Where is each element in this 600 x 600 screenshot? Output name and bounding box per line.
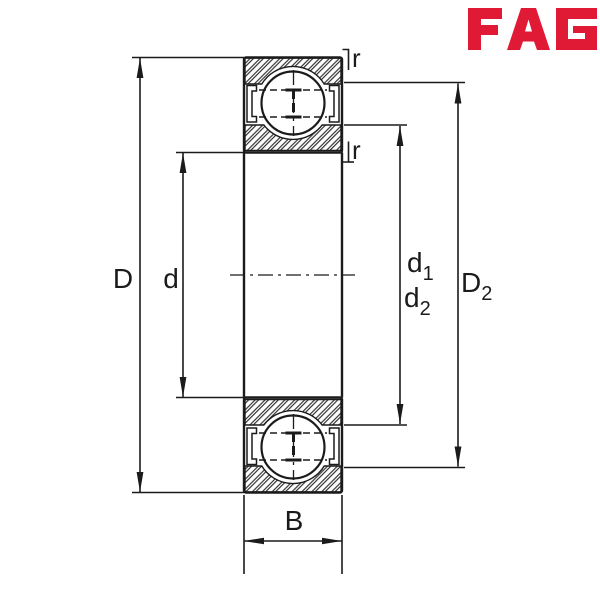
D-label: D — [113, 263, 133, 294]
logo-letter-A — [507, 8, 550, 50]
fag-logo — [468, 8, 597, 50]
d-label: d — [163, 263, 179, 294]
bearing-diagram: D d d1 d2 D2 B r — [0, 0, 600, 600]
B-arrow-left-icon — [244, 538, 264, 545]
d2-label: d2 — [404, 282, 431, 320]
d1-sub: 1 — [423, 263, 434, 285]
r-top-label: r — [352, 43, 361, 73]
r-bottom-label: r — [352, 135, 361, 165]
D-arrow-up-icon — [137, 58, 144, 78]
D2-sub: 2 — [481, 283, 492, 305]
D-arrow-down-icon — [137, 472, 144, 492]
D2-arrow-down-icon — [455, 447, 462, 467]
dimension-B: B — [244, 495, 342, 574]
drawing-canvas: D d d1 d2 D2 B r — [0, 0, 600, 600]
d-arrow-down-icon — [180, 377, 187, 397]
radius-labels: r r — [343, 43, 362, 165]
D2-base: D — [461, 267, 481, 298]
d1-arrow-up-icon — [397, 126, 404, 146]
B-arrow-right-icon — [322, 538, 342, 545]
D2-label: D2 — [461, 267, 492, 305]
bearing-top-section — [244, 58, 342, 153]
D2-arrow-up-icon — [455, 84, 462, 104]
r-bottom-leader — [343, 142, 349, 163]
d1-base: d — [407, 247, 423, 278]
logo-letter-G — [556, 8, 597, 50]
d1-label: d1 — [407, 247, 434, 285]
d2-sub: 2 — [420, 298, 431, 320]
d2-base: d — [404, 282, 420, 313]
d1-arrow-down-icon — [397, 404, 404, 424]
d-arrow-up-icon — [180, 153, 187, 173]
logo-letter-F — [468, 8, 502, 50]
B-label: B — [285, 505, 304, 536]
r-top-leader — [343, 50, 349, 71]
bearing-bottom-section — [244, 398, 342, 493]
dimension-d1-d2: d1 d2 — [344, 125, 434, 425]
